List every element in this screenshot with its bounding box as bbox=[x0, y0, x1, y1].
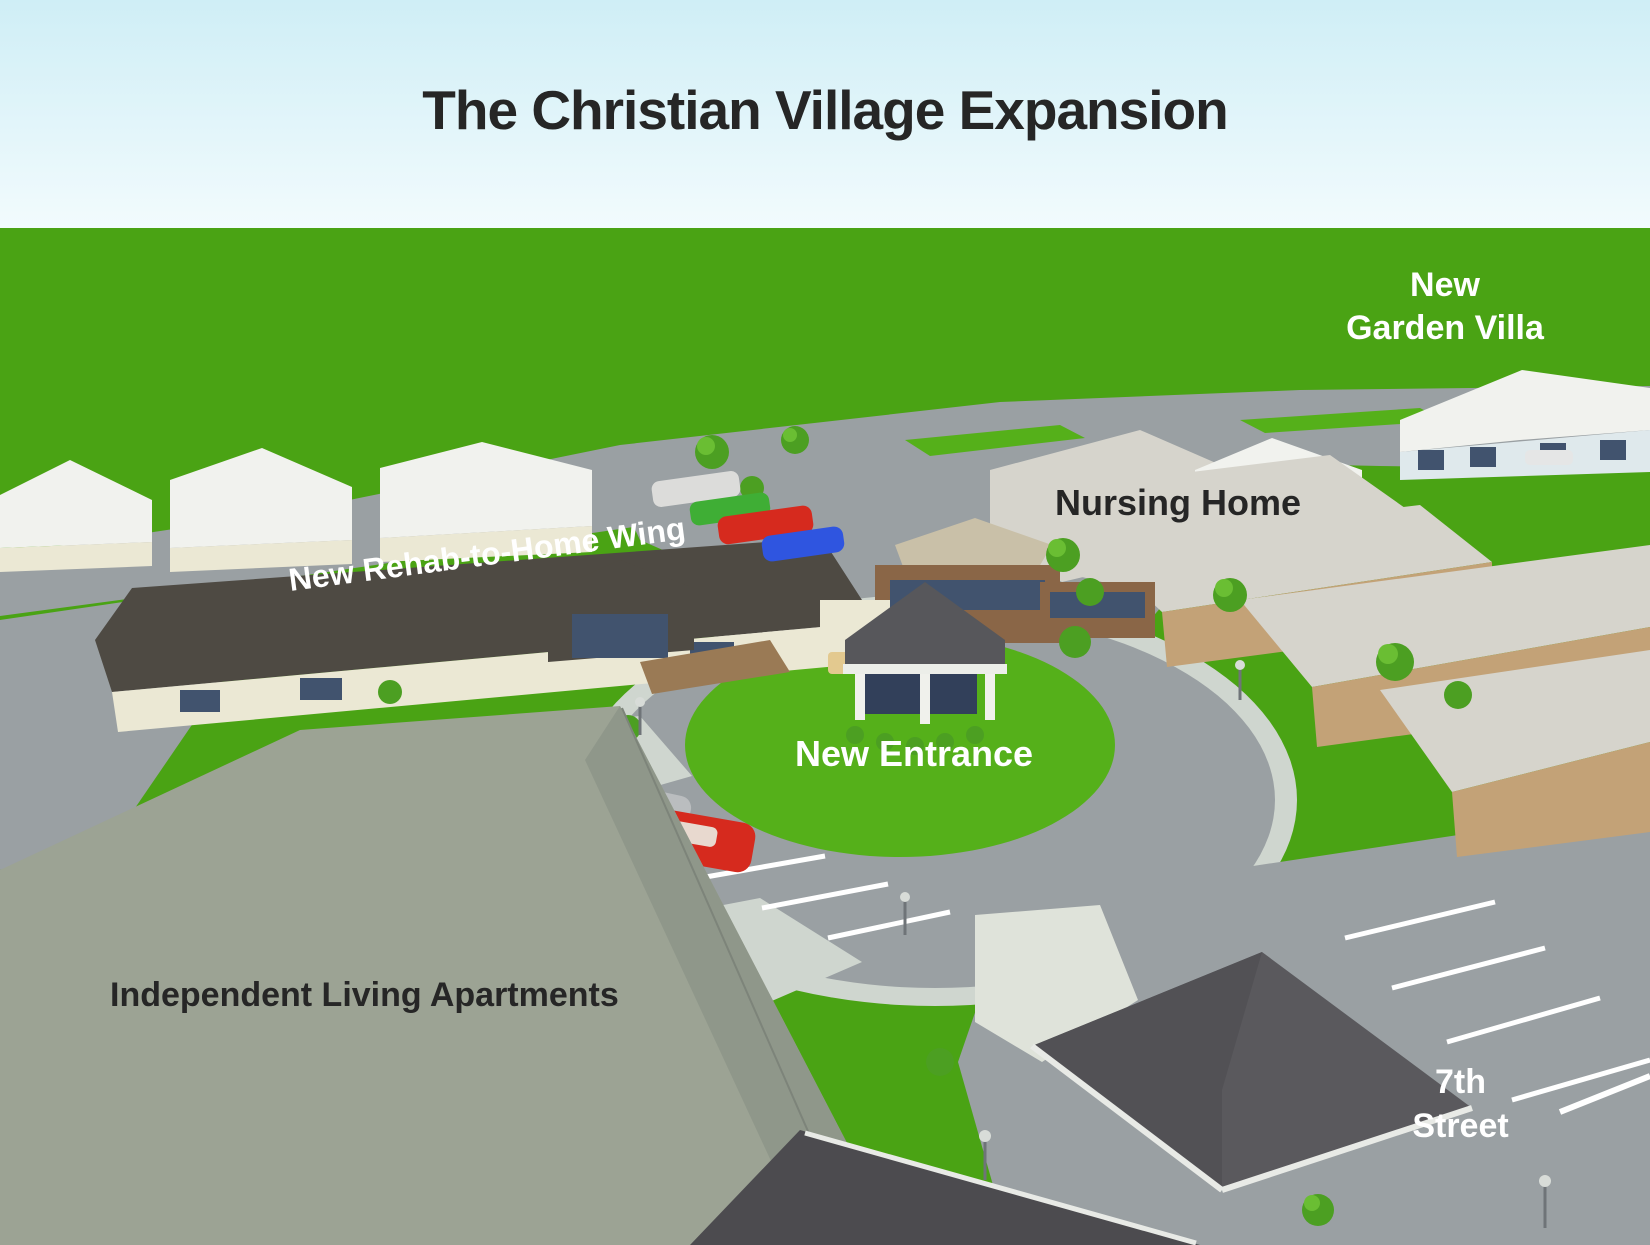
window bbox=[1600, 440, 1626, 460]
sunroom-glass bbox=[572, 614, 668, 658]
window bbox=[1418, 450, 1444, 470]
window bbox=[1470, 447, 1496, 467]
label-garden-villa: New Garden Villa bbox=[1310, 264, 1580, 349]
column bbox=[985, 674, 995, 720]
label-garden-villa-line1: New bbox=[1310, 264, 1580, 307]
label-7th-street-line2: Street bbox=[1383, 1104, 1538, 1148]
site-plan-graphics bbox=[0, 0, 1650, 1245]
distant-car bbox=[1525, 450, 1573, 465]
campus-rendering: The Christian Village Expansion New Gard… bbox=[0, 0, 1650, 1245]
fascia bbox=[843, 664, 1007, 674]
label-nursing-home: Nursing Home bbox=[1055, 482, 1301, 524]
label-new-entrance: New Entrance bbox=[795, 733, 1033, 775]
window bbox=[300, 678, 342, 700]
label-garden-villa-line2: Garden Villa bbox=[1310, 307, 1580, 350]
window bbox=[180, 690, 220, 712]
cottage bbox=[0, 460, 152, 572]
cottage bbox=[170, 448, 352, 572]
column bbox=[855, 674, 865, 720]
garden-villa-building bbox=[1400, 370, 1650, 480]
label-independent-living: Independent Living Apartments bbox=[110, 976, 619, 1015]
page-title: The Christian Village Expansion bbox=[0, 78, 1650, 142]
label-7th-street: 7th Street bbox=[1383, 1060, 1538, 1148]
label-7th-street-line1: 7th bbox=[1383, 1060, 1538, 1104]
column bbox=[920, 674, 930, 724]
